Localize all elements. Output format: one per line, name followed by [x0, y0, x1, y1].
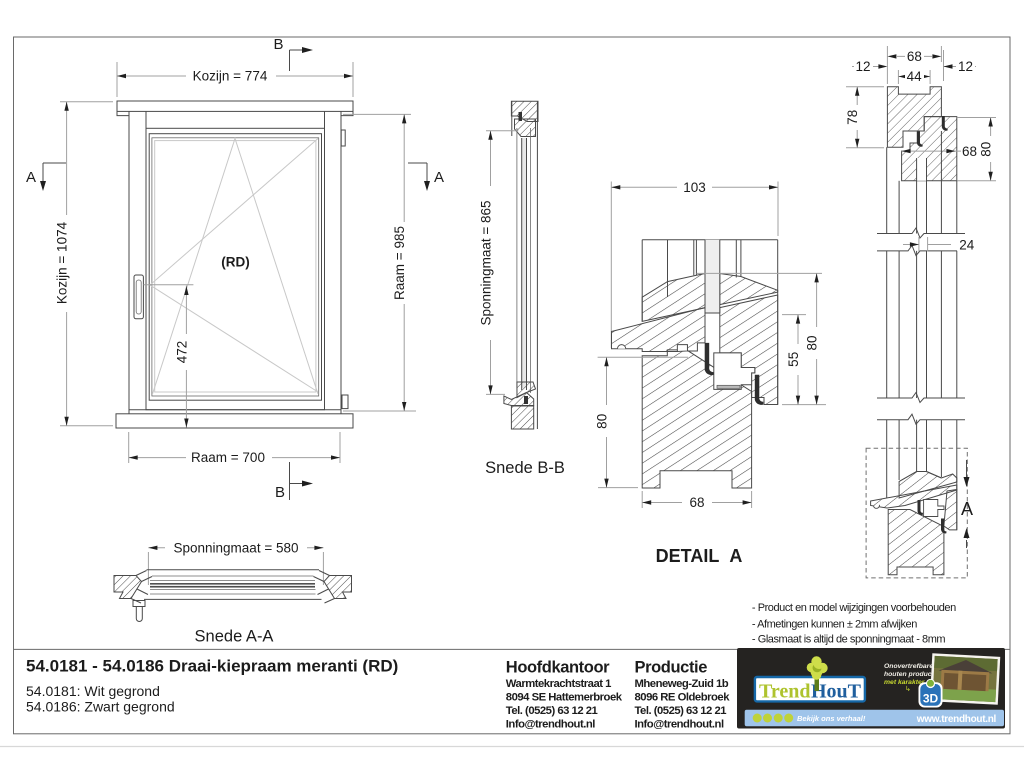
svg-text:A: A: [434, 169, 444, 186]
svg-text:Kozijn = 774: Kozijn = 774: [193, 69, 268, 84]
svg-text:(RD): (RD): [221, 255, 250, 270]
svg-text:Tel. (0525) 63 12 21: Tel. (0525) 63 12 21: [506, 705, 598, 717]
svg-text:Info@trendhout.nl: Info@trendhout.nl: [635, 718, 724, 730]
svg-text:Kozijn = 1074: Kozijn = 1074: [55, 221, 70, 304]
svg-text:8096 RE Oldebroek: 8096 RE Oldebroek: [635, 692, 731, 704]
svg-text:Mheneweg-Zuid 1b: Mheneweg-Zuid 1b: [635, 678, 729, 690]
svg-text:B: B: [273, 36, 283, 53]
svg-text:54.0181 - 54.0186 Draai-kiepra: 54.0181 - 54.0186 Draai-kiepraam meranti…: [26, 656, 398, 675]
svg-text:www.trendhout.nl: www.trendhout.nl: [916, 714, 997, 725]
svg-text:↳: ↳: [905, 685, 911, 693]
svg-text:68: 68: [689, 495, 704, 510]
svg-text:Sponningmaat = 865: Sponningmaat = 865: [479, 201, 494, 326]
svg-text:80: 80: [595, 414, 610, 429]
svg-text:44: 44: [907, 69, 923, 84]
svg-text:- Product en model wijzigingen: - Product en model wijzigingen voorbehou…: [752, 602, 956, 614]
svg-text:78: 78: [845, 110, 860, 125]
svg-text:Warmtekrachtstraat 1: Warmtekrachtstraat 1: [506, 678, 611, 690]
svg-text:68: 68: [962, 144, 977, 159]
svg-text:Onovertrefbare: Onovertrefbare: [884, 663, 933, 670]
svg-text:472: 472: [174, 341, 189, 364]
svg-text:12: 12: [958, 59, 973, 74]
svg-text:3D: 3D: [923, 692, 939, 706]
svg-text:80: 80: [805, 335, 820, 350]
svg-text:met karakter: met karakter: [884, 679, 925, 686]
svg-text:12: 12: [855, 59, 870, 74]
svg-text:Sponningmaat = 580: Sponningmaat = 580: [174, 540, 299, 555]
svg-text:Hoofdkantoor: Hoofdkantoor: [506, 659, 610, 677]
svg-text:Raam = 700: Raam = 700: [191, 450, 265, 465]
svg-text:80: 80: [979, 142, 994, 157]
svg-text:103: 103: [683, 180, 706, 195]
svg-text:8094 SE Hattemerbroek: 8094 SE Hattemerbroek: [506, 692, 623, 704]
svg-text:54.0181: Wit gegrond: 54.0181: Wit gegrond: [26, 683, 160, 699]
svg-text:Tel. (0525) 63 12 21: Tel. (0525) 63 12 21: [635, 705, 727, 717]
svg-text:54.0186: Zwart gegrond: 54.0186: Zwart gegrond: [26, 699, 175, 715]
svg-text:Snede A-A: Snede A-A: [195, 628, 274, 646]
svg-text:Trend: Trend: [759, 681, 811, 703]
svg-text:- Afmetingen kunnen ± 2mm afwi: - Afmetingen kunnen ± 2mm afwijken: [752, 619, 917, 631]
svg-text:- Glasmaat is altijd de sponni: - Glasmaat is altijd de sponningmaat - 8…: [752, 634, 946, 646]
svg-text:A: A: [961, 499, 973, 519]
svg-text:A: A: [26, 169, 36, 186]
svg-text:Info@trendhout.nl: Info@trendhout.nl: [506, 718, 595, 730]
svg-text:Raam = 985: Raam = 985: [392, 226, 407, 300]
svg-text:Bekijk ons verhaal!: Bekijk ons verhaal!: [797, 714, 866, 723]
svg-text:B: B: [275, 484, 285, 501]
svg-text:68: 68: [907, 49, 922, 64]
svg-text:55: 55: [786, 352, 801, 367]
svg-text:Snede B-B: Snede B-B: [485, 459, 565, 477]
svg-text:DETAIL A: DETAIL A: [656, 546, 743, 566]
svg-text:24: 24: [959, 237, 975, 252]
svg-text:Productie: Productie: [635, 659, 708, 677]
